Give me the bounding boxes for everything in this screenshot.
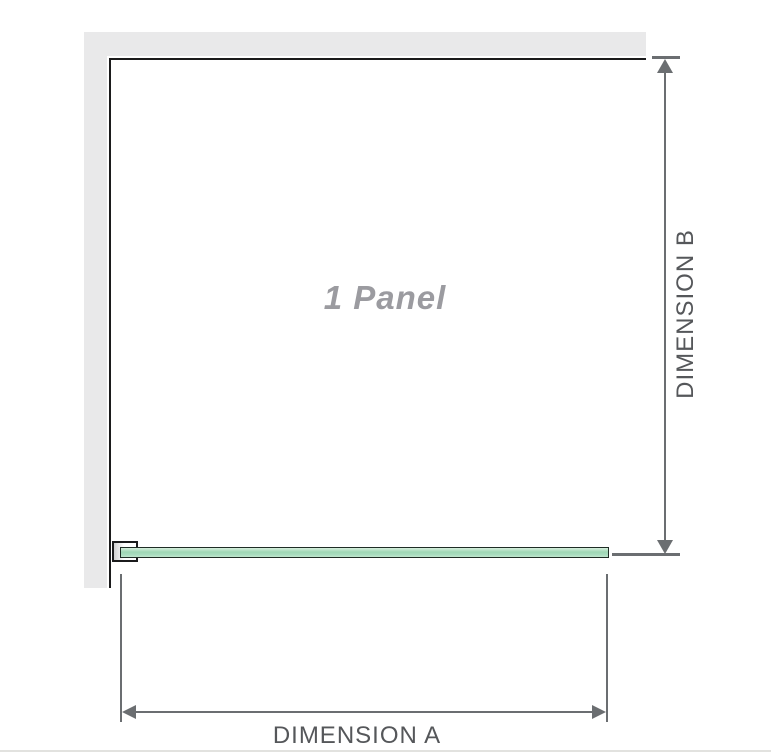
dimension-a-extension-left: [120, 574, 122, 722]
dimension-b-line: [664, 64, 666, 549]
dimension-a-extension-right: [606, 574, 608, 722]
arrow-right-icon: [592, 705, 606, 719]
wall-top-band: [84, 32, 646, 56]
arrow-down-icon: [657, 540, 673, 554]
dimension-a-line: [126, 711, 602, 713]
wall-side-band: [84, 32, 107, 588]
bottom-divider: [0, 750, 771, 752]
panel-outline-left: [109, 58, 111, 588]
dimension-a-label: DIMENSION A: [237, 723, 477, 749]
panel-label: 1 Panel: [275, 278, 495, 318]
arrow-left-icon: [122, 705, 136, 719]
arrow-up-icon: [657, 59, 673, 73]
panel-dimension-diagram: 1 Panel DIMENSION B DIMENSION A: [0, 0, 771, 755]
dimension-b-label: DIMENSION B: [673, 194, 699, 434]
glass-panel-bar: [120, 547, 609, 558]
panel-outline-top: [110, 58, 646, 60]
